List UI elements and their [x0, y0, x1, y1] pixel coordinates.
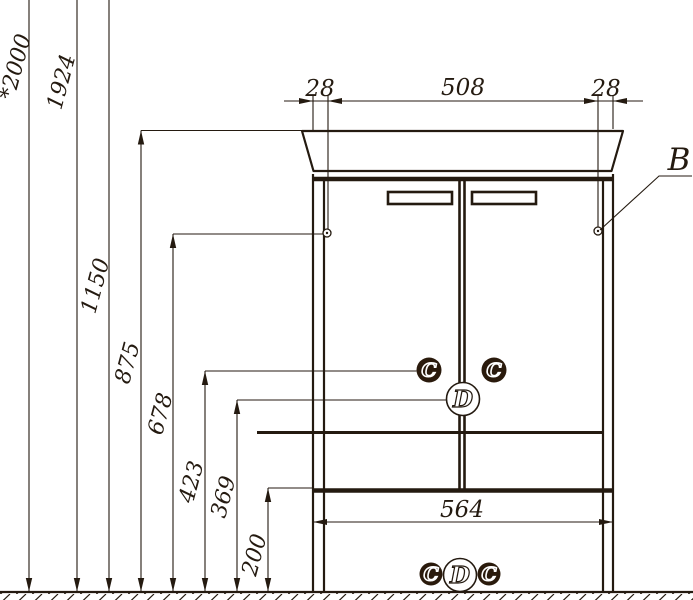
left-door-handle	[388, 192, 452, 204]
dim-564-label: 564	[440, 497, 484, 523]
marker-c-mid-right-label: C	[486, 360, 501, 382]
dim-564-arrow-right	[599, 519, 613, 525]
left-hinge-screw-center	[326, 232, 328, 234]
ground-line	[0, 592, 693, 600]
right-door-handle	[472, 192, 536, 204]
dim-1924-arrow-down	[74, 578, 80, 592]
dim-564-arrow-left	[313, 519, 327, 525]
dim-369-label: 369	[206, 473, 241, 520]
dim-2000-label: *2000	[0, 31, 37, 102]
dim-1150-arrow-down	[106, 578, 112, 592]
dim-508-label: 508	[441, 75, 485, 101]
bottom-width-dimension: 564	[313, 497, 613, 525]
right-hinge-screw-center	[597, 230, 599, 232]
dim-28-left-label: 28	[304, 76, 334, 102]
dim-423-label: 423	[174, 458, 209, 506]
dim-369-arrow-up	[234, 400, 240, 414]
drawing-canvas: *2000 1924 1150 875 678	[0, 0, 693, 600]
dim-200-label: 200	[237, 531, 272, 579]
dim-200: 200	[237, 488, 313, 592]
dim-678-arrow-up	[170, 234, 176, 248]
dim-423: 423	[174, 371, 416, 592]
dim-28-right-label: 28	[590, 76, 620, 102]
mid-markers: C C D	[417, 358, 507, 416]
marker-c-bottom-left-label: C	[423, 564, 438, 586]
dim-1924-label: 1924	[43, 52, 82, 113]
dim-678: 678	[143, 234, 322, 592]
marker-d-mid-label: D	[452, 386, 473, 413]
dim-678-arrow-down	[170, 578, 176, 592]
dim-875-arrow-down	[138, 578, 144, 592]
height-dimensions: *2000 1924 1150 875 678	[0, 0, 446, 592]
callout-b-label: B	[667, 142, 691, 178]
dim-423-arrow-up	[202, 371, 208, 385]
dim-423-arrow-down	[202, 578, 208, 592]
dim-369-arrow-down	[234, 578, 240, 592]
dim-875: 875	[110, 131, 302, 592]
washbasin-outline	[302, 131, 623, 171]
marker-c-bottom-right-label: C	[481, 564, 496, 586]
technical-drawing-vanity-cabinet: *2000 1924 1150 875 678	[0, 0, 693, 600]
bottom-markers: C D C	[420, 559, 501, 592]
floor-hatching	[0, 593, 693, 600]
dim-2000-arrow-down	[26, 578, 32, 592]
dim-200-arrow-up	[265, 488, 271, 502]
marker-d-bottom-label: D	[449, 562, 470, 589]
dim-1924: 1924	[43, 0, 82, 592]
dim-875-arrow-up	[138, 131, 144, 145]
marker-c-mid-left-label: C	[421, 360, 436, 382]
dim-2000: *2000	[0, 0, 37, 592]
dim-200-arrow-down	[265, 578, 271, 592]
dim-1150: 1150	[77, 0, 116, 592]
dim-875-label: 875	[110, 339, 145, 386]
